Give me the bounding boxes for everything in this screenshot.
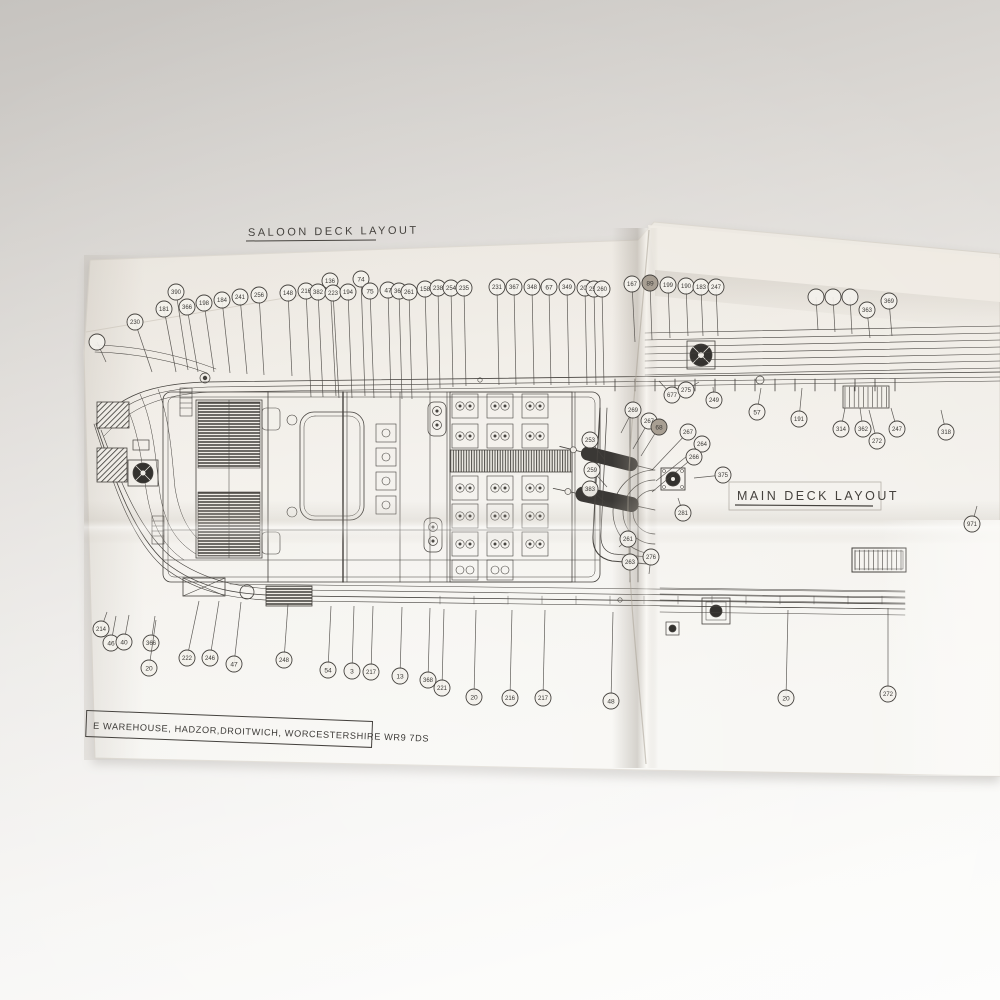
callout-label: 269	[628, 408, 639, 414]
callout-label: 261	[623, 537, 634, 543]
callout-label: 214	[96, 627, 107, 633]
callout-label: 367	[509, 285, 520, 291]
callout-label: 281	[678, 511, 689, 517]
callout-label: 217	[538, 696, 549, 702]
callout-label: 383	[585, 487, 596, 493]
main-deck-title: MAIN DECK LAYOUT	[737, 489, 899, 503]
callout-label: 221	[437, 686, 448, 692]
callout-label: 89	[646, 280, 654, 287]
callout-label: 199	[663, 283, 674, 289]
callout-label: 366	[146, 641, 157, 647]
callout-263: 263	[622, 554, 638, 570]
callout-label: 57	[753, 409, 761, 416]
callout-label: 246	[205, 656, 216, 662]
saloon-deck-title: SALOON DECK LAYOUT	[248, 225, 419, 239]
callout-label: 194	[343, 290, 354, 296]
callout-label: 231	[492, 285, 503, 291]
callout-label: 349	[562, 285, 573, 291]
callout-label: 136	[325, 279, 336, 285]
callout-label: 247	[711, 285, 722, 291]
callout-label: 216	[505, 696, 516, 702]
callout-label: 249	[709, 398, 720, 404]
callout-label: 238	[433, 286, 444, 292]
callout-label: 348	[527, 285, 538, 291]
callout-label: 276	[646, 555, 657, 561]
callout-label: 366	[182, 305, 193, 311]
callout-label: 223	[328, 291, 339, 297]
callout-label: 318	[941, 430, 952, 436]
callout-label: 46	[107, 640, 115, 647]
callout-label: 390	[171, 290, 182, 296]
callout-label: 183	[696, 285, 707, 291]
callout-label: 369	[884, 299, 895, 305]
callout-label: 362	[858, 427, 869, 433]
callout-label: 191	[794, 417, 805, 423]
callout-label: 314	[836, 427, 847, 433]
callout-label: 230	[130, 320, 141, 326]
callout-label: 261	[404, 290, 415, 296]
callout-label: 256	[254, 293, 265, 299]
callout-label: 48	[607, 698, 615, 705]
callout-label: 222	[182, 656, 193, 662]
callout-label: 167	[627, 282, 638, 288]
callout-label: 148	[283, 291, 294, 297]
callout-label: 235	[459, 286, 470, 292]
callout-label: 368	[423, 678, 434, 684]
callout-label: 241	[235, 295, 246, 301]
callout-label: 20	[782, 695, 790, 702]
callout-label: 184	[217, 298, 228, 304]
callout-label: 181	[159, 307, 170, 313]
callout-label: 40	[120, 639, 128, 646]
callout-label: 267	[683, 430, 694, 436]
callout-label: 264	[697, 442, 708, 448]
scene: 2301813903661981842412561482163821362231…	[0, 0, 1000, 1000]
callout-label: 158	[420, 287, 431, 293]
callout-label: 20	[470, 694, 478, 701]
photo-of-ship-deck-plan: 2301813903661981842412561482163821362231…	[0, 0, 1000, 1000]
callout-label: 272	[883, 692, 894, 698]
callout-label: 248	[279, 658, 290, 664]
callout-label: 254	[446, 286, 457, 292]
callout-label: 198	[199, 301, 210, 307]
callout-label: 263	[625, 560, 636, 566]
callout-label: 275	[681, 388, 692, 394]
callout-label: 266	[689, 455, 700, 461]
callout-label: 247	[892, 427, 903, 433]
callout-label: 190	[681, 284, 692, 290]
callout-label: 260	[597, 287, 608, 293]
callout-label: 68	[655, 424, 663, 431]
callout-label: 47	[230, 661, 238, 668]
callout-label: 67	[545, 284, 553, 291]
callout-label: 363	[862, 308, 873, 314]
callout-label: 375	[718, 473, 729, 479]
callout-label: 971	[967, 522, 978, 528]
callout-label: 74	[357, 276, 365, 283]
callout-label: 20	[145, 665, 153, 672]
callout-label: 677	[667, 393, 678, 399]
callout-label: 54	[324, 667, 332, 674]
callout-label: 272	[872, 439, 883, 445]
callout-label: 259	[587, 468, 598, 474]
callout-label: 3	[350, 668, 354, 675]
callout-label: 75	[366, 288, 374, 295]
callout-label: 253	[585, 438, 596, 444]
callout-label: 13	[396, 673, 404, 680]
callout-label: 217	[366, 670, 377, 676]
callout-label: 382	[313, 290, 324, 296]
